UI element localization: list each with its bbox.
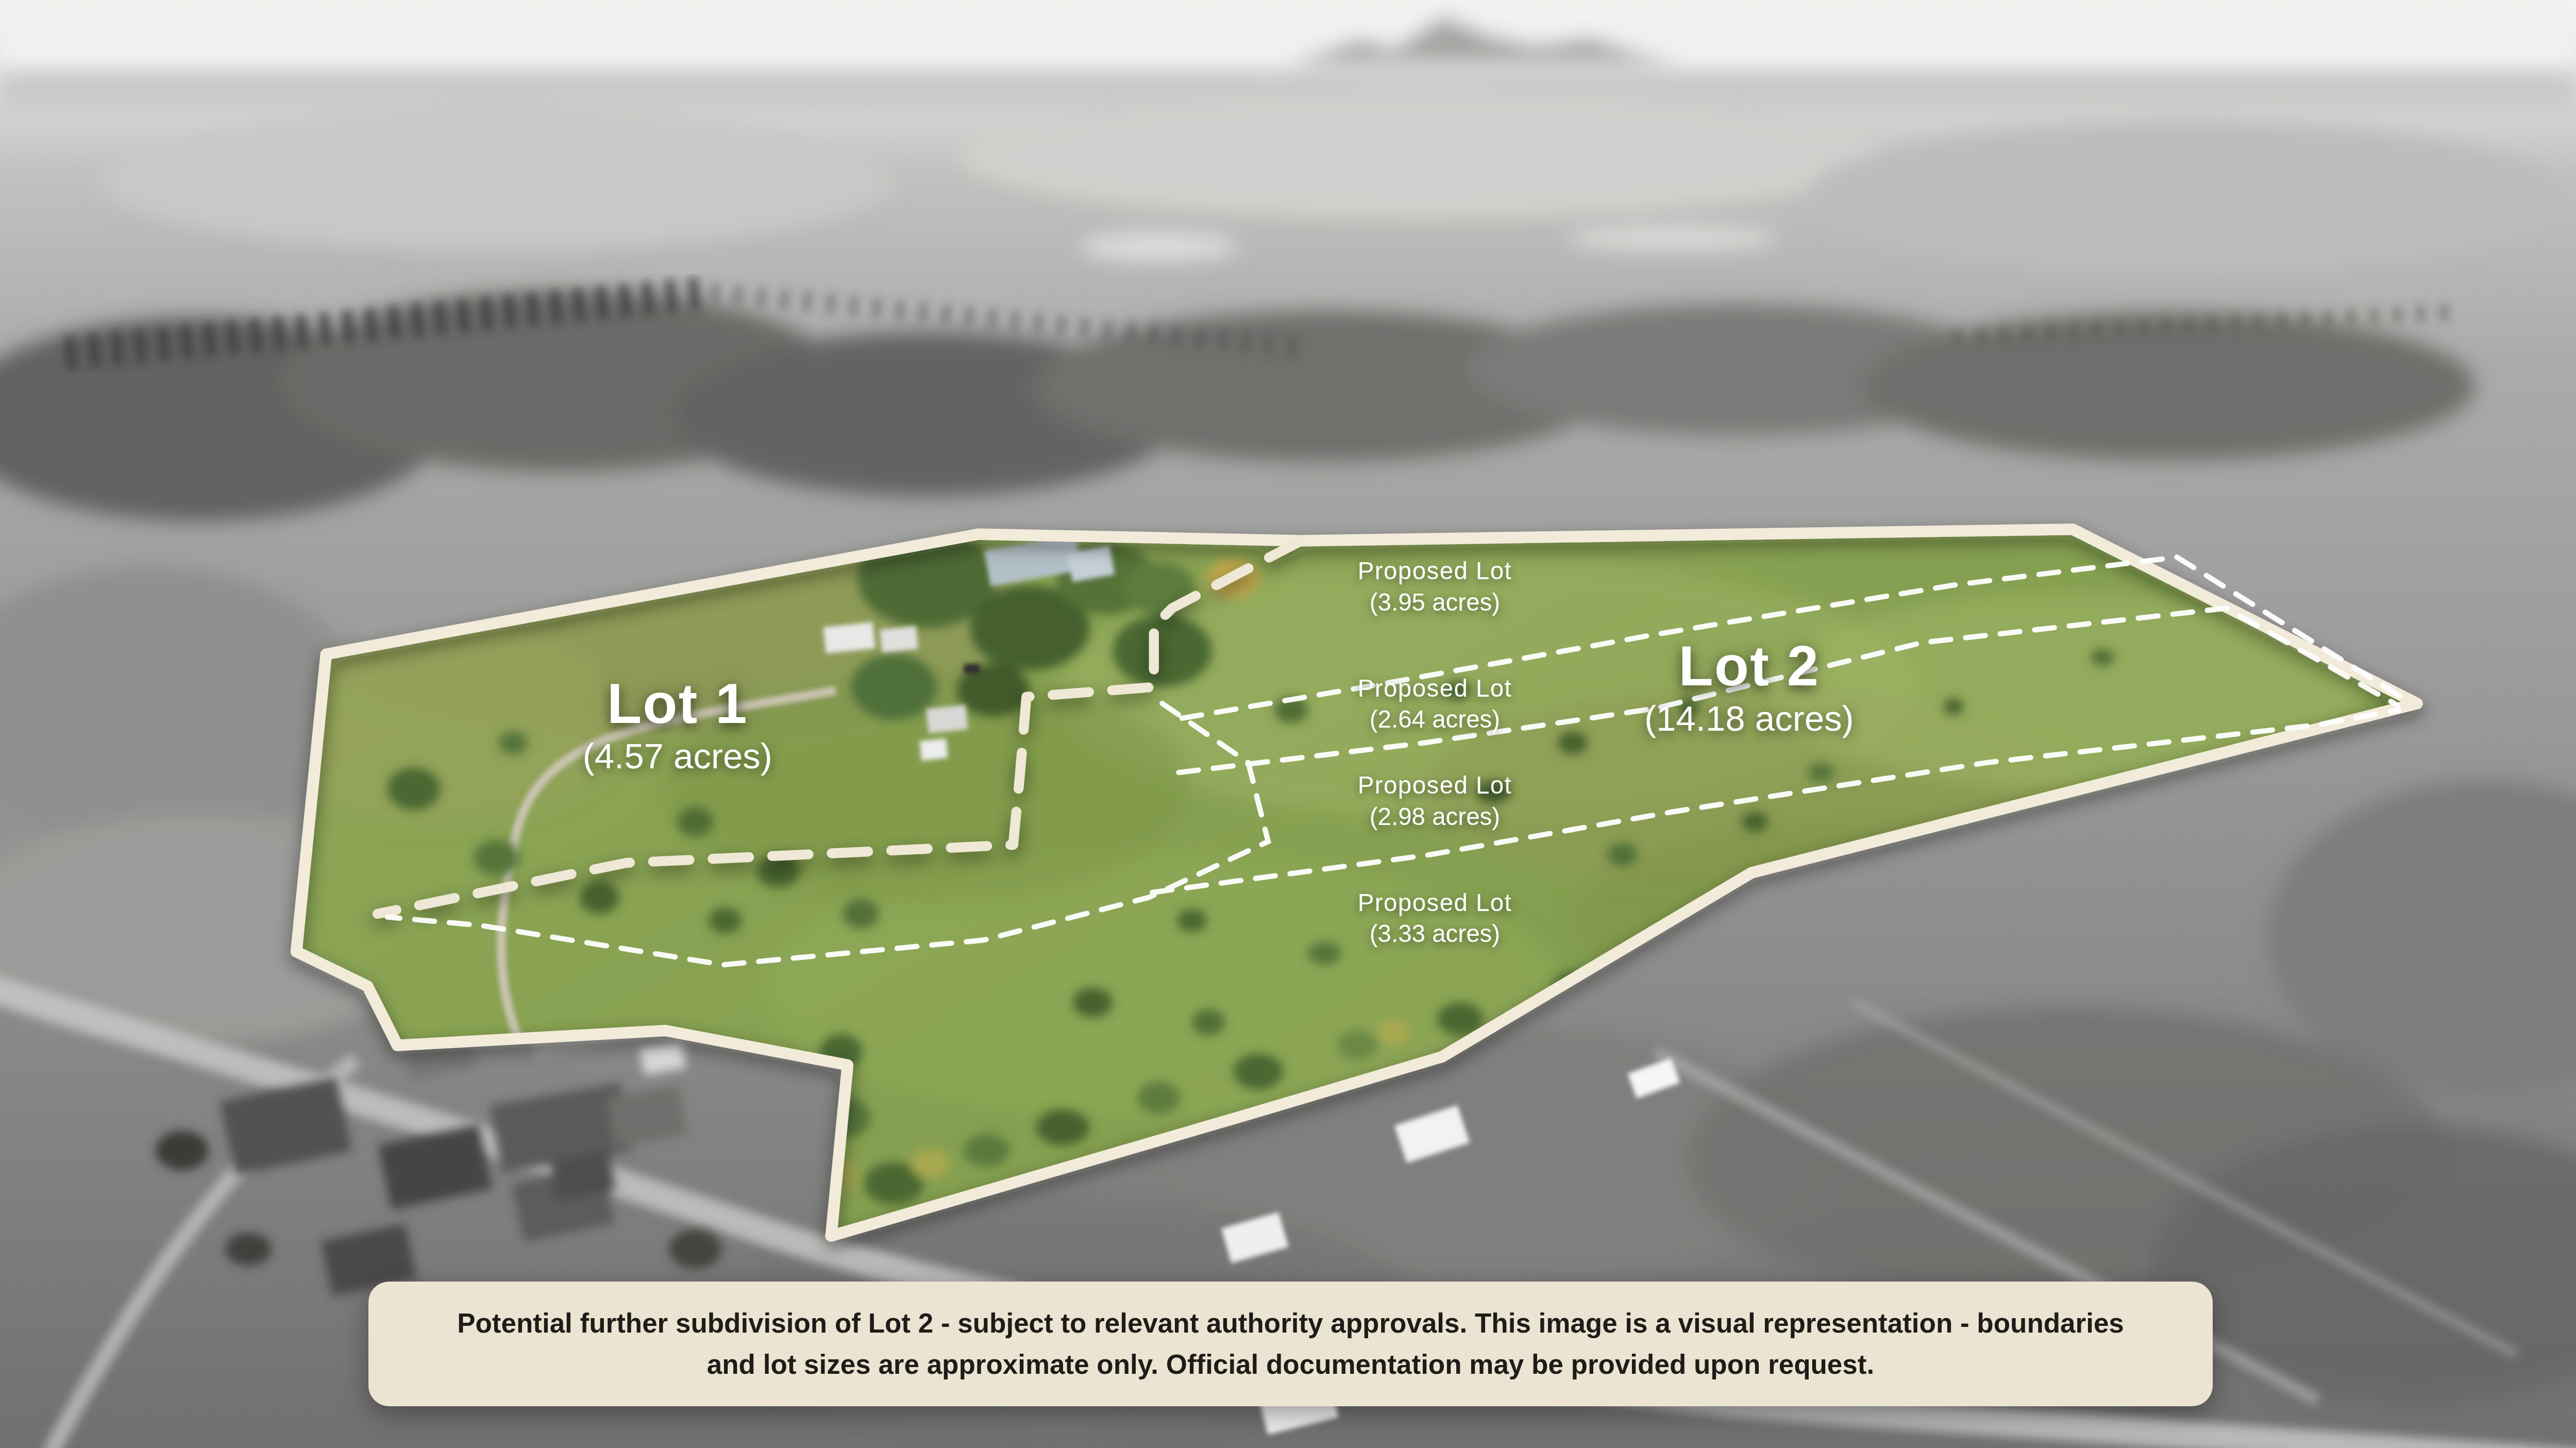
aerial-subdivision-graphic: Lot 1 (4.57 acres) Lot 2 (14.18 acres) P… <box>0 0 2576 1448</box>
aerial-photo <box>0 0 2576 1448</box>
disclaimer-bar: Potential further subdivision of Lot 2 -… <box>368 1282 2213 1406</box>
disclaimer-text: Potential further subdivision of Lot 2 -… <box>368 1303 2213 1385</box>
